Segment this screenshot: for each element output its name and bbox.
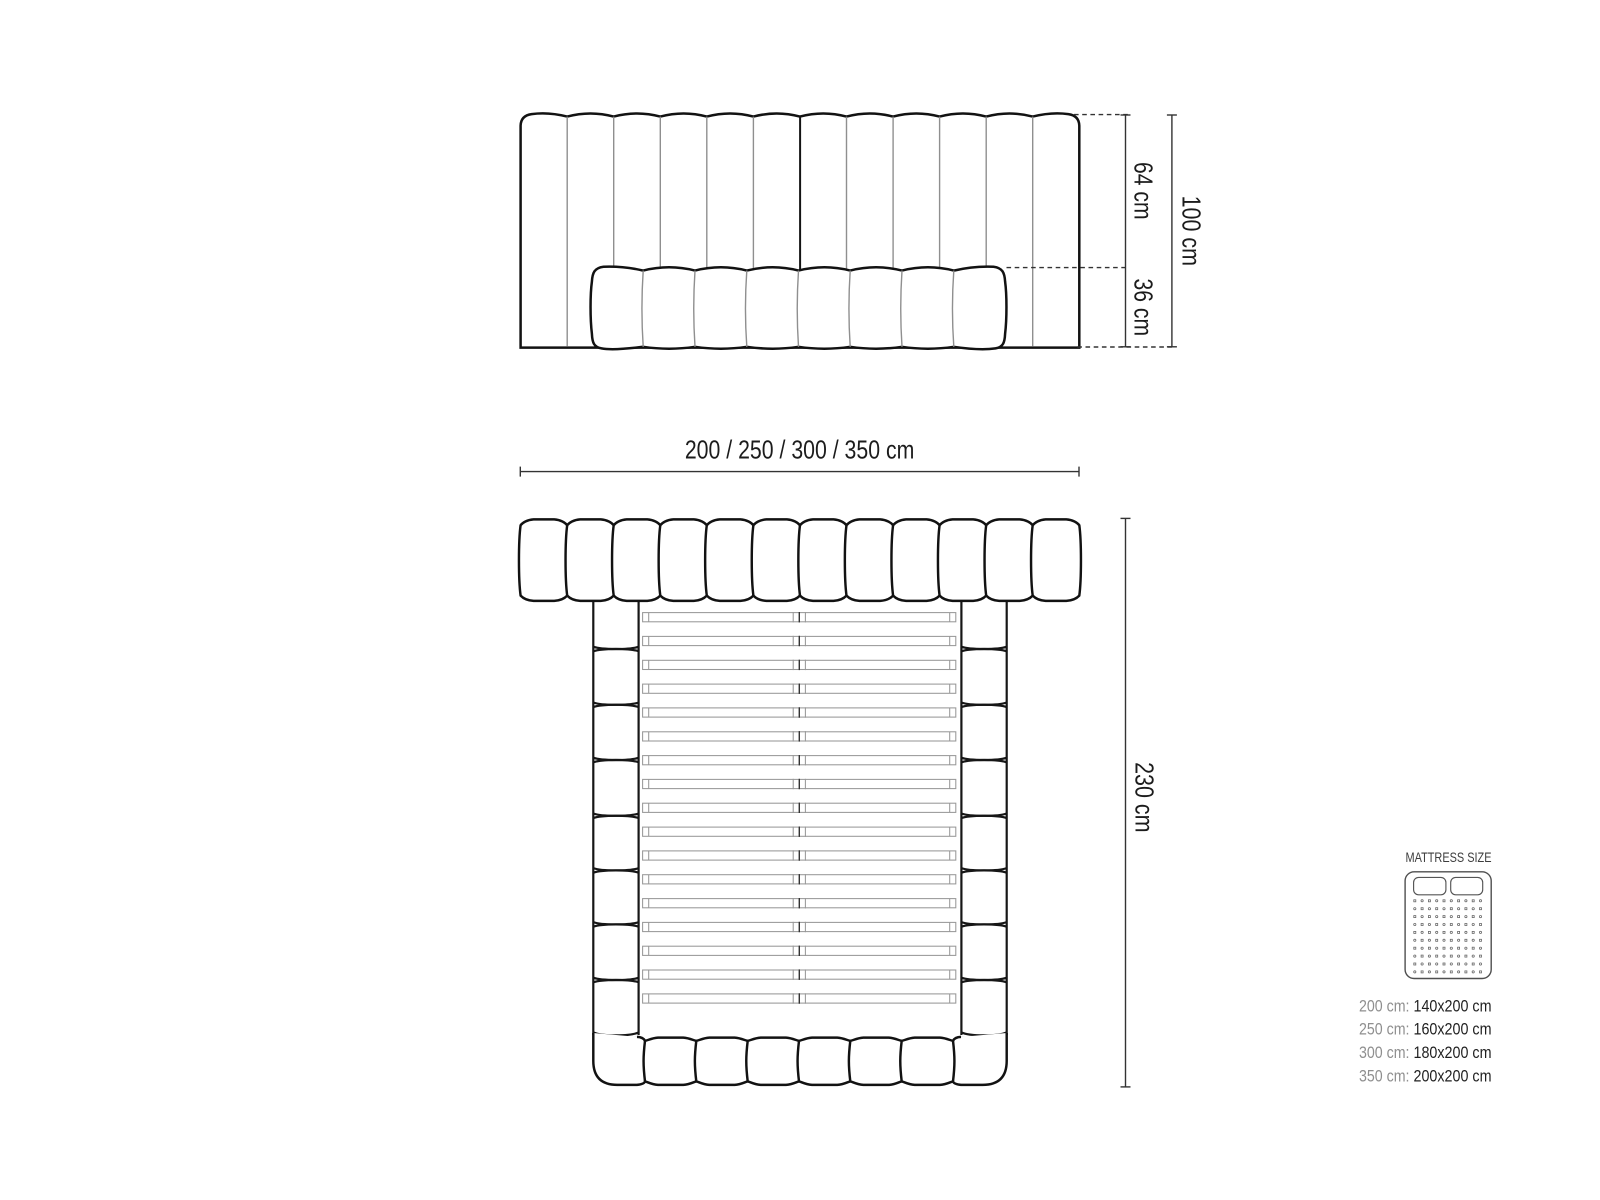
svg-text:180x200 cm: 180x200 cm [1414,1043,1492,1062]
svg-text:64 cm: 64 cm [1129,162,1159,220]
svg-text:250 cm:: 250 cm: [1359,1020,1410,1039]
svg-text:350 cm:: 350 cm: [1359,1067,1410,1086]
svg-text:100 cm: 100 cm [1177,196,1207,266]
svg-text:230 cm: 230 cm [1130,762,1160,832]
svg-text:200x200 cm: 200x200 cm [1414,1067,1492,1086]
svg-text:200 / 250 / 300 / 350 cm: 200 / 250 / 300 / 350 cm [685,435,915,465]
svg-text:300 cm:: 300 cm: [1359,1043,1410,1062]
svg-text:MATTRESS SIZE: MATTRESS SIZE [1406,850,1492,866]
svg-text:36 cm: 36 cm [1129,279,1159,337]
svg-text:200 cm:: 200 cm: [1359,996,1410,1015]
svg-text:140x200 cm: 140x200 cm [1414,996,1492,1015]
svg-text:160x200 cm: 160x200 cm [1414,1020,1492,1039]
